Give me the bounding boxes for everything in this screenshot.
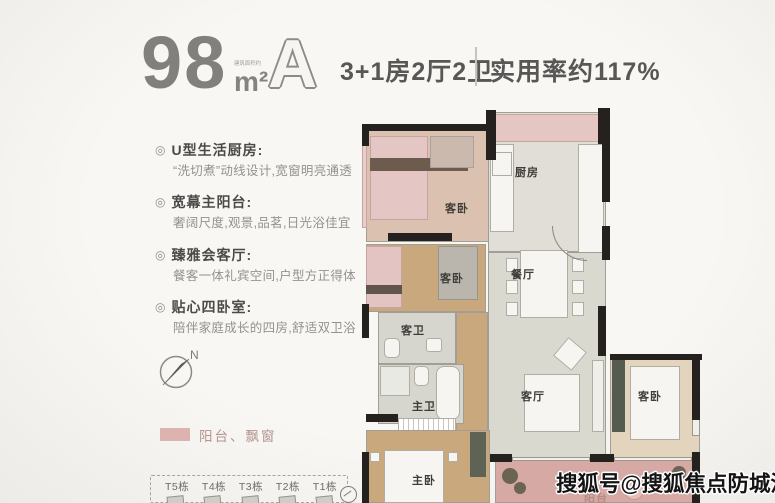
building-label-t1: T1栋 (313, 479, 337, 494)
wardrobe (470, 432, 486, 477)
room-label: 客卫 (390, 322, 436, 338)
feature-livingroom: ◎臻雅会客厅: 餐客一体礼宾空间,户型方正得体 (155, 245, 375, 284)
toilet (414, 366, 429, 386)
sink (426, 338, 442, 352)
wall (362, 452, 369, 503)
feature-bedrooms: ◎贴心四卧室: 陪伴家庭成长的四房,舒适双卫浴 (155, 297, 375, 336)
kitchen-bay-window (490, 114, 604, 142)
room-label: 主卧 (401, 472, 447, 488)
feature-kitchen: ◎U型生活厨房: “洗切煮”动线设计,宽窗明亮通透 (155, 140, 375, 179)
feature-desc: 陪伴家庭成长的四房,舒适双卫浴 (173, 320, 375, 336)
wall (610, 354, 702, 360)
compass-north-label: N (190, 348, 199, 362)
building-label-t2: T2栋 (276, 479, 300, 494)
area-note: 建筑面积约 (234, 62, 261, 67)
footboard (366, 285, 402, 294)
room-label: 客厅 (510, 388, 556, 404)
toilet (384, 338, 400, 358)
building-label-t3: T3栋 (239, 479, 263, 494)
wardrobe (430, 136, 474, 168)
wall (598, 306, 606, 356)
building-footprint (278, 495, 296, 503)
dining-chair (572, 302, 584, 316)
bullet-icon: ◎ (155, 248, 166, 262)
room-label: 主卫 (401, 398, 447, 414)
tv-cabinet (592, 360, 604, 432)
bullet-icon: ◎ (155, 300, 166, 314)
watermark: 搜狐号@搜狐焦点防城港站 (556, 467, 775, 498)
wall (388, 233, 452, 241)
wall (602, 142, 610, 202)
wall (490, 454, 512, 462)
feature-title: 臻雅会客厅: (171, 245, 252, 265)
bay-window-strip (362, 132, 367, 228)
window (512, 457, 590, 461)
bullet-icon: ◎ (155, 195, 166, 209)
legend-swatch-pink (160, 428, 190, 441)
dining-chair (506, 280, 518, 294)
building-labels: T5栋 T4栋 T3栋 T2栋 T1栋 (151, 476, 347, 494)
window (614, 457, 692, 461)
wall (598, 108, 610, 144)
room-label: 客卧 (432, 200, 482, 216)
bed (370, 136, 428, 220)
room-label: 客卧 (624, 388, 676, 404)
building-footprint (241, 495, 259, 503)
building-footprint (204, 495, 222, 503)
feature-desc: 餐客一体礼宾空间,户型方正得体 (173, 268, 375, 284)
wall (362, 304, 369, 338)
feature-title: 宽幕主阳台: (171, 192, 252, 212)
site-compass-icon (340, 486, 357, 503)
building-label-t4: T4栋 (202, 479, 226, 494)
feature-balcony: ◎宽幕主阳台: 奢阔尺度,观景,品茗,日光浴佳宜 (155, 192, 375, 231)
floorplan-ad-page: 98 建筑面积约 m² A 3+1房2厅2卫 实用率约117% ◎U型生活厨房:… (0, 0, 775, 503)
feature-title: U型生活厨房: (171, 140, 263, 160)
shower (380, 366, 410, 396)
plant (502, 468, 518, 484)
floorplan: 客卧 厨房 客卧 餐厅 客厅 客卫 (362, 108, 712, 503)
plant (514, 482, 526, 494)
area-unit: m² (234, 68, 268, 96)
feature-desc: “洗切煮”动线设计,宽窗明亮通透 (173, 163, 375, 179)
dining-chair (572, 280, 584, 294)
unit-type-letter: A (268, 30, 317, 98)
wall (364, 124, 488, 131)
wall (590, 454, 614, 462)
nightstand (448, 452, 458, 462)
wall (362, 124, 369, 146)
legend-label: 阳台、飘窗 (199, 425, 277, 445)
area-unit-group: 建筑面积约 m² (234, 61, 268, 96)
site-plan-strip: T5栋 T4栋 T3栋 T2栋 T1栋 (150, 475, 348, 503)
dining-chair (506, 302, 518, 316)
header-divider (475, 47, 477, 86)
building-footprint (315, 495, 333, 503)
building-footprint (166, 495, 184, 503)
area-number: 98 (141, 26, 227, 100)
wall (366, 414, 398, 422)
efficiency-text: 实用率约117% (490, 52, 661, 88)
bullet-icon: ◎ (155, 143, 166, 157)
bed (366, 246, 402, 308)
nightstand (370, 452, 380, 462)
feature-title: 贴心四卧室: (171, 297, 252, 317)
room-label: 餐厅 (500, 266, 546, 282)
wall (602, 226, 610, 260)
building-footprints (151, 494, 347, 503)
wall (486, 110, 496, 160)
layout-spec: 3+1房2厅2卫 (340, 52, 493, 88)
room-label: 厨房 (502, 164, 552, 180)
feature-desc: 奢阔尺度,观景,品茗,日光浴佳宜 (173, 215, 375, 231)
room-label: 客卧 (430, 270, 474, 286)
dining-table (520, 250, 568, 318)
building-label-t5: T5栋 (165, 479, 189, 494)
feature-list: ◎U型生活厨房: “洗切煮”动线设计,宽窗明亮通透 ◎宽幕主阳台: 奢阔尺度,观… (155, 140, 375, 349)
wall (692, 360, 700, 420)
